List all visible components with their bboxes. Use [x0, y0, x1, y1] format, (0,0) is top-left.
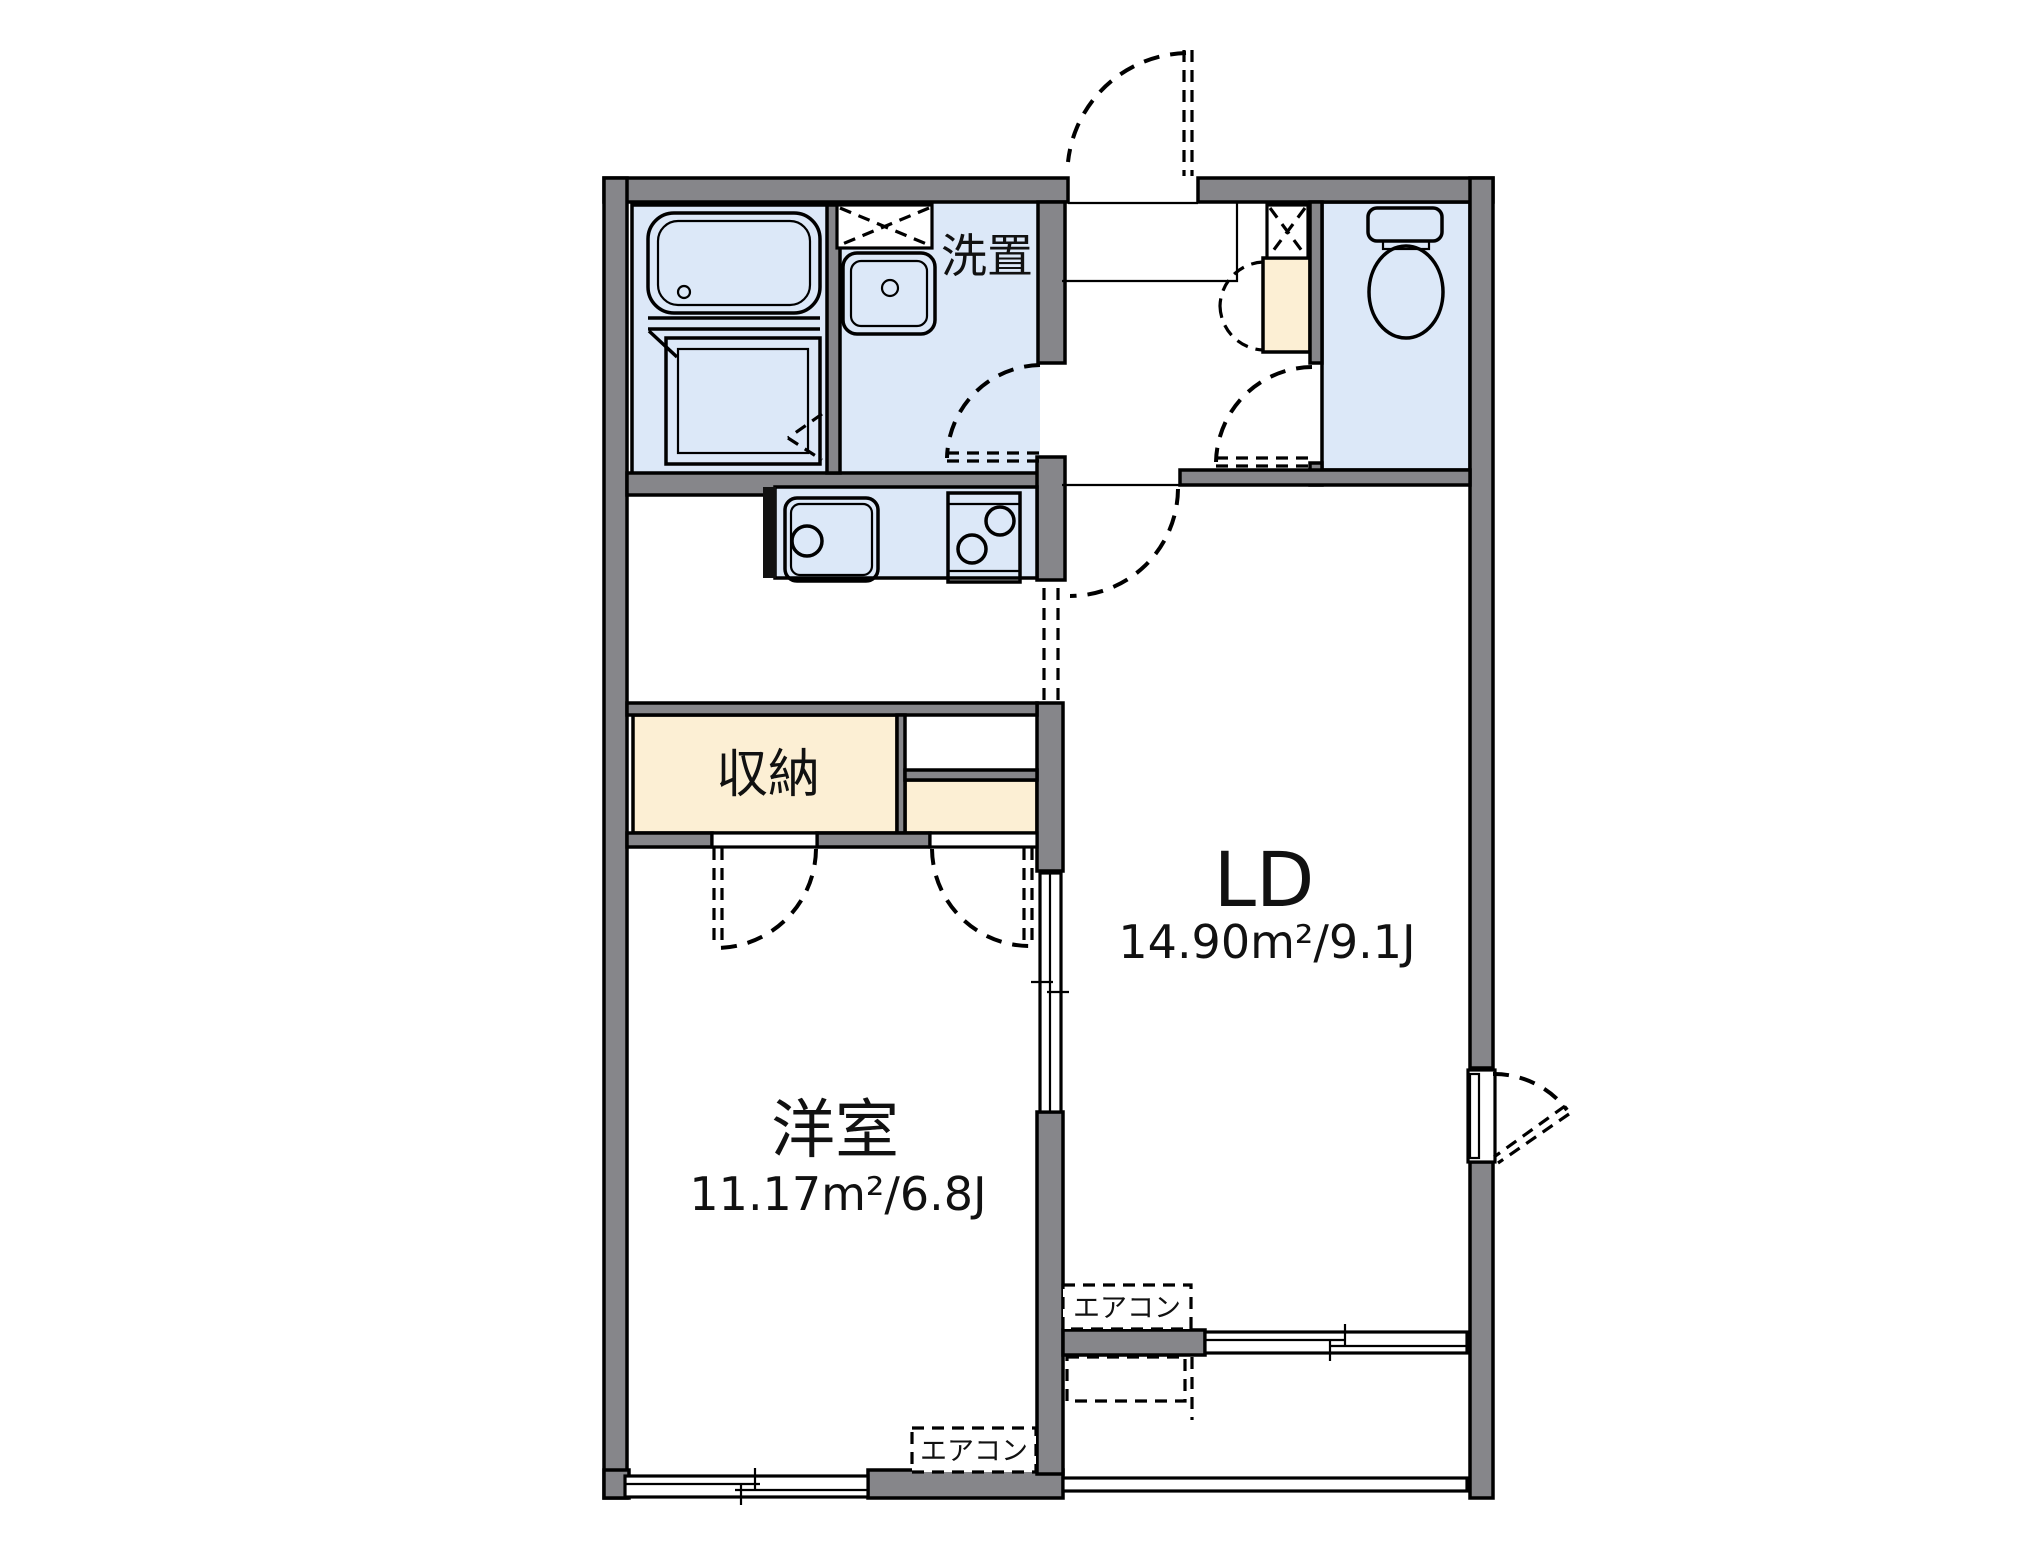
genkan-step-line — [1062, 203, 1237, 281]
toilet-door-leaf — [1216, 458, 1312, 466]
wall-washroom-hall-upper — [1038, 202, 1065, 363]
wall-closet-bottom-mid — [817, 833, 930, 847]
wall-toilet-left-upper — [1310, 202, 1322, 363]
kitchen-counter — [775, 487, 1037, 578]
aircon-label-western: エアコン — [920, 1436, 1028, 1467]
entrance-door-leaf — [1184, 50, 1192, 176]
outer-wall-top-left — [604, 178, 1068, 202]
kitchen — [763, 487, 1037, 582]
outer-wall-left — [604, 178, 627, 1498]
wall-kitchen-right — [1037, 457, 1065, 580]
toilet-door-swing — [1216, 367, 1312, 462]
room-door-opening — [930, 833, 1037, 847]
aircon-outdoor-unit — [1067, 1357, 1185, 1401]
closet-door-leaf — [714, 848, 722, 945]
ld-area-label: 14.90m²/9.1J — [1118, 915, 1415, 969]
entrance-door-swing — [1068, 53, 1186, 162]
outer-wall-right-upper — [1470, 178, 1493, 1068]
wall-closet-bottom-left — [627, 833, 712, 847]
entry-storage-fill — [1263, 258, 1310, 352]
wall-divider-lower — [1037, 1112, 1063, 1474]
balcony-railing — [1063, 1478, 1467, 1491]
room-door-leaf — [1024, 848, 1032, 943]
floor-plan-drawing: 洗置 収納 LD 14.90m²/9.1J 洋室 11.17m²/6.8J エア… — [0, 0, 2031, 1543]
wall-divider-upper — [1037, 703, 1063, 871]
outer-wall-top-right — [1198, 178, 1493, 202]
hall-ld-door-leaf — [1044, 588, 1058, 700]
laundry-label: 洗置 — [941, 229, 1033, 283]
bathroom-floor — [632, 205, 828, 475]
aircon-label-ld: エアコン — [1073, 1293, 1181, 1324]
closet-door-opening — [712, 833, 817, 847]
closet-door-swing — [716, 849, 816, 948]
kitchen-counter-endcap — [763, 487, 776, 578]
wall-closet-top — [627, 703, 1037, 715]
hall-ld-door-swing — [1070, 489, 1178, 596]
floor-plan: 洗置 収納 LD 14.90m²/9.1J 洋室 11.17m²/6.8J エア… — [0, 0, 2031, 1543]
closet2-fill — [905, 780, 1037, 833]
right-door-opening — [1468, 1070, 1495, 1162]
entry-storage-bifold-door — [1220, 262, 1263, 350]
wall-closet2-top — [905, 770, 1037, 780]
ld-window — [1205, 1332, 1467, 1353]
right-door-leaf — [1494, 1106, 1569, 1163]
wall-hall-bottom — [1180, 470, 1470, 485]
outer-wall-bottom — [868, 1470, 1063, 1498]
western-room-area-label: 11.17m²/6.8J — [689, 1167, 986, 1221]
western-room-window — [625, 1476, 868, 1497]
ld-label: LD — [1214, 835, 1315, 924]
sliding-partition — [1031, 873, 1069, 1112]
room-door-swing — [932, 849, 1030, 946]
wall-ld-bottom — [1063, 1330, 1205, 1355]
closet-label: 収納 — [716, 745, 820, 805]
western-room-label: 洋室 — [771, 1094, 899, 1168]
right-door-swing — [1493, 1074, 1567, 1110]
outer-wall-right-lower — [1470, 1162, 1493, 1498]
